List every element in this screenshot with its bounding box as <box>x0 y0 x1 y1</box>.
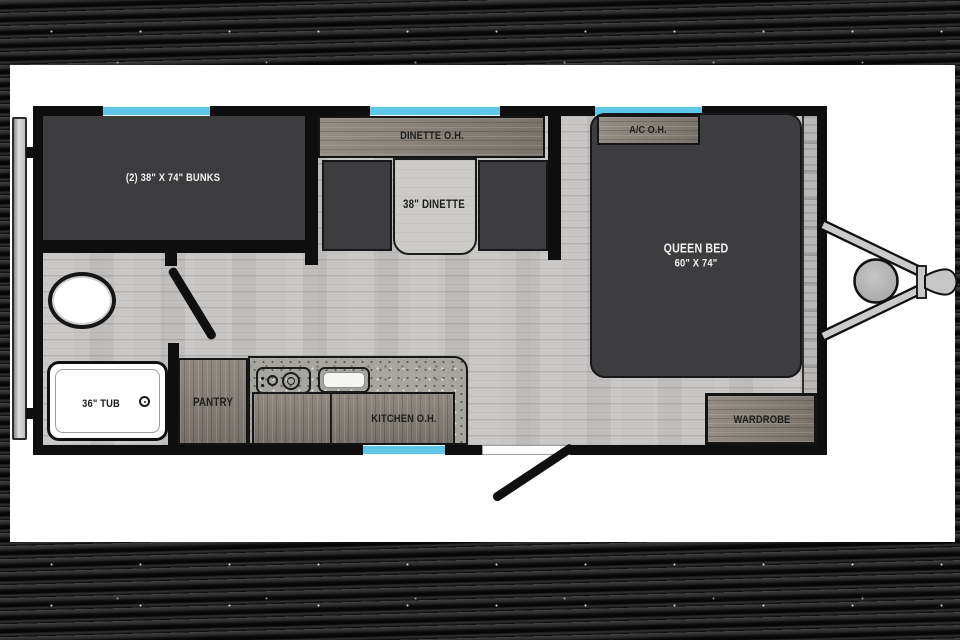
tub-label: 36" TUB <box>82 398 120 410</box>
queen-bed-label-line1: QUEEN BED <box>664 241 729 257</box>
dinette-table-label: 38" DINETTE <box>403 199 465 211</box>
tub-drain-icon <box>139 396 150 407</box>
bunk-room-wall <box>43 240 318 253</box>
hitch-a-frame <box>795 190 960 350</box>
stove-knobs-icon <box>261 377 264 380</box>
stove-burner-small-icon <box>267 375 278 386</box>
dinette-wall-left <box>305 116 318 265</box>
propane-tank-icon <box>855 260 898 303</box>
floorplan-scene: (2) 38" X 74" BUNKS DINETTE O.H. 38" DIN… <box>0 0 960 640</box>
ac-overhead-label: A/C O.H. <box>629 124 667 136</box>
rear-bumper <box>12 117 27 440</box>
window-bunks <box>103 106 210 116</box>
hitch-coupler-icon <box>925 269 957 294</box>
stove-burner-large-icon <box>282 372 300 390</box>
dinette-bench-right <box>478 160 548 251</box>
window-kitchen <box>363 445 445 455</box>
kitchen-sink-icon <box>318 367 370 393</box>
bathroom-door-jamb <box>165 246 177 266</box>
dinette-wall-right <box>548 116 561 260</box>
toilet <box>48 272 116 329</box>
dinette-overhead-label: DINETTE O.H. <box>400 130 464 142</box>
pantry-label: PANTRY <box>193 397 233 409</box>
queen-bed-label-line2: 60" X 74" <box>664 257 729 271</box>
dinette-bench-left <box>322 160 392 251</box>
kitchen-overhead-label: KITCHEN O.H. <box>371 413 436 425</box>
bunks-label: (2) 38" X 74" BUNKS <box>126 172 220 184</box>
window-dinette <box>370 106 500 116</box>
wardrobe-label: WARDROBE <box>734 414 791 426</box>
queen-bed-label: QUEEN BED 60" X 74" <box>664 241 729 272</box>
